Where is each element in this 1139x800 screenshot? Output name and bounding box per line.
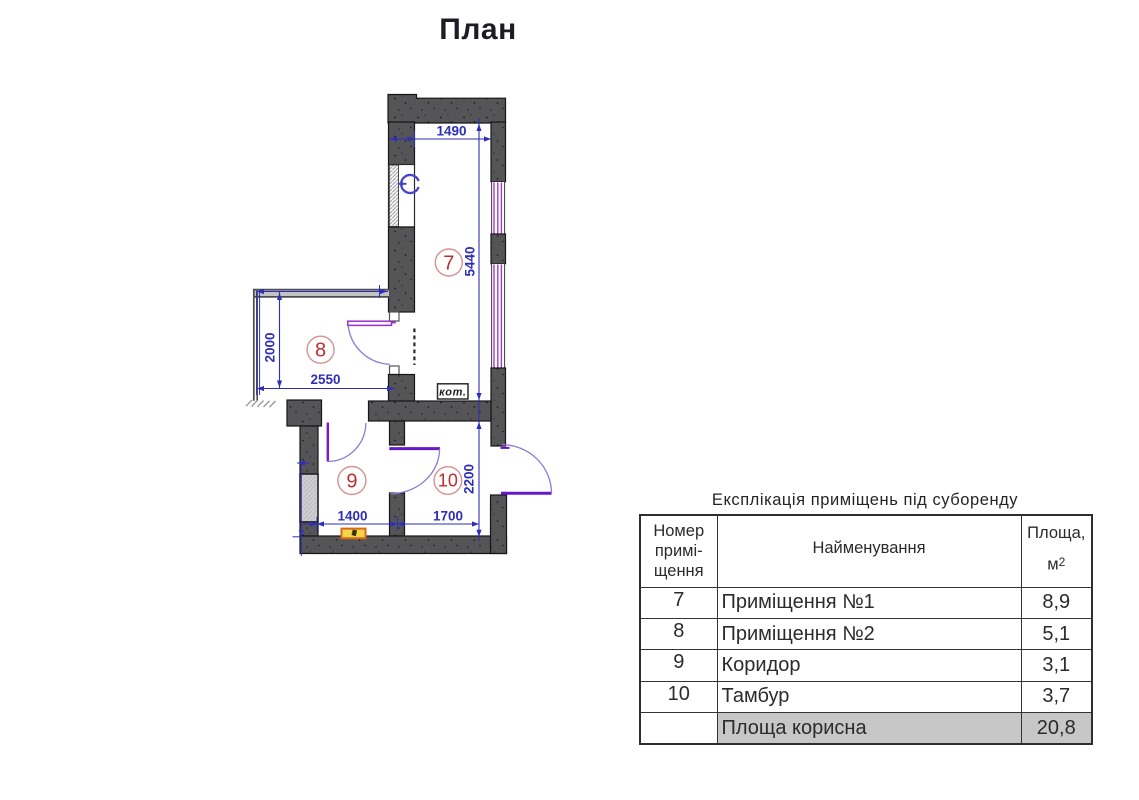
svg-text:8: 8	[315, 340, 326, 362]
svg-text:10: 10	[438, 471, 458, 491]
svg-text:2200: 2200	[462, 464, 477, 494]
svg-text:5440: 5440	[463, 246, 478, 276]
svg-text:кот.: кот.	[439, 387, 466, 399]
svg-text:2550: 2550	[310, 372, 340, 387]
svg-text:1490: 1490	[436, 124, 466, 139]
svg-text:7: 7	[443, 253, 454, 275]
svg-text:2000: 2000	[263, 332, 278, 362]
svg-text:1700: 1700	[433, 509, 463, 524]
svg-text:9: 9	[346, 471, 357, 493]
svg-text:1400: 1400	[337, 509, 367, 524]
